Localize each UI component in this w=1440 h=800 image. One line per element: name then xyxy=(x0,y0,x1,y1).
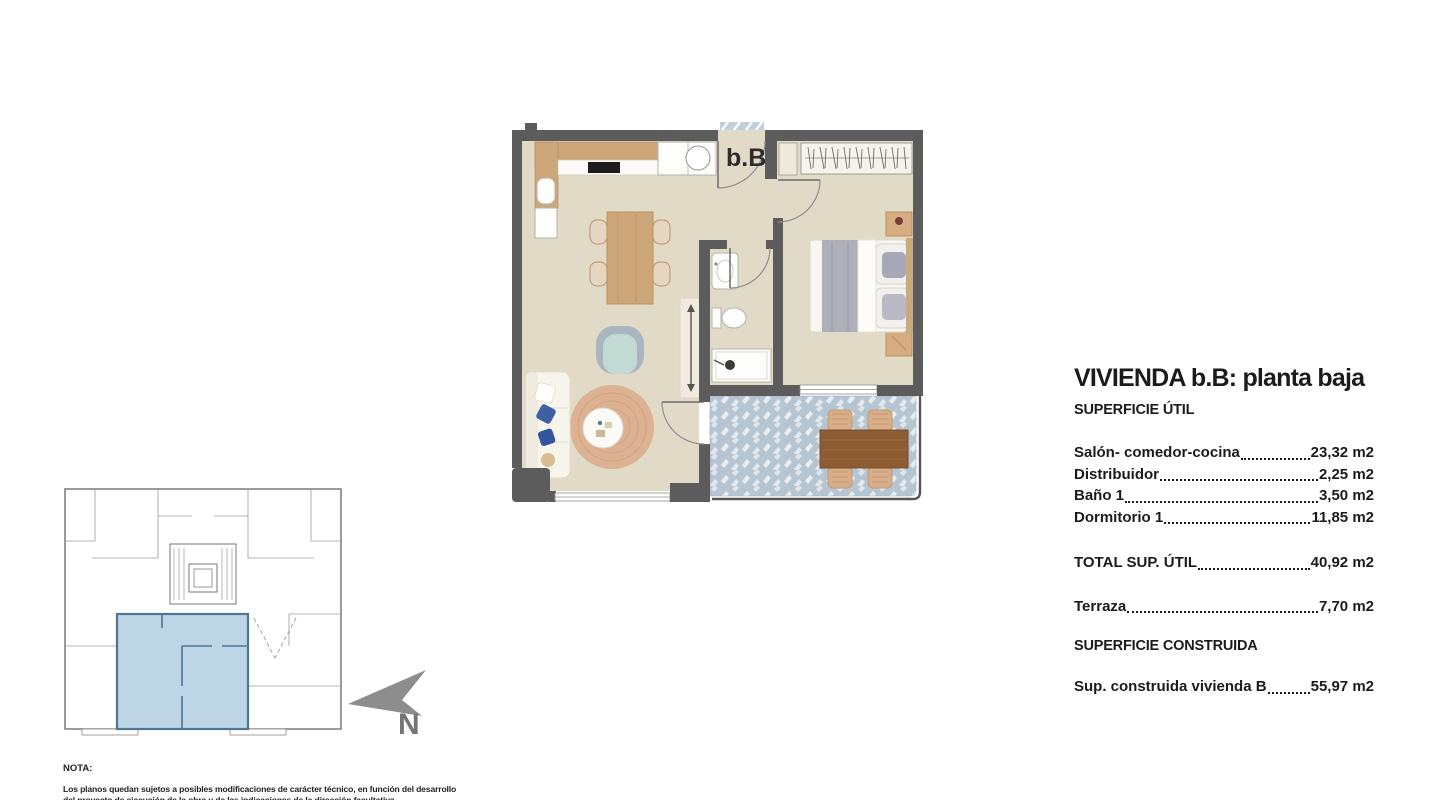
wicker-chair xyxy=(828,467,852,488)
entrance-jamb-wall xyxy=(765,141,777,179)
wall-pilaster xyxy=(525,123,537,131)
north-label: N xyxy=(398,708,420,738)
dining-chair xyxy=(653,262,670,286)
dotted-leader xyxy=(1198,568,1310,570)
area-row: Dormitorio 111,85 m2 xyxy=(1074,507,1374,529)
total-useful-area-row: TOTAL SUP. ÚTIL40,92 m2 xyxy=(1074,552,1374,574)
dining-table xyxy=(607,212,653,304)
dotted-leader xyxy=(1125,501,1318,503)
room-label: Baño 1 xyxy=(1074,485,1124,507)
terrace-table xyxy=(820,430,908,468)
total-area: 40,92 m2 xyxy=(1311,552,1374,574)
hall-closet xyxy=(779,143,797,175)
area-summary: VIVIENDA b.B: planta baja SUPERFICIE ÚTI… xyxy=(1074,364,1374,698)
cooktop xyxy=(588,162,620,173)
note-block: NOTA: Los planos quedan sujetos a posibl… xyxy=(63,763,483,800)
plan-title: VIVIENDA b.B: planta baja xyxy=(1074,364,1374,393)
total-label: TOTAL SUP. ÚTIL xyxy=(1074,552,1197,574)
bathtub xyxy=(712,349,771,382)
bed-blanket xyxy=(822,240,858,332)
wicker-chair xyxy=(868,467,892,488)
dining-chair xyxy=(590,262,607,286)
floorplan-page: b.B N VIVIENDA b.B: planta baja SUPERFIC… xyxy=(0,0,1440,800)
note-line-1: Los planos quedan sujetos a posibles mod… xyxy=(63,784,483,795)
elevator xyxy=(189,564,217,592)
dotted-leader xyxy=(1268,692,1310,694)
room-area: 3,50 m2 xyxy=(1319,485,1374,507)
room-label: Salón- comedor-cocina xyxy=(1074,442,1240,464)
terrace-label: Terraza xyxy=(1074,596,1126,618)
unit-label: b.B xyxy=(726,144,766,172)
wicker-chair xyxy=(868,410,892,431)
room-area: 2,25 m2 xyxy=(1319,464,1374,486)
area-row: Baño 13,50 m2 xyxy=(1074,485,1374,507)
room-label: Distribuidor xyxy=(1074,464,1159,486)
area-row: Salón- comedor-cocina23,32 m2 xyxy=(1074,442,1374,464)
rug-and-coffee-table xyxy=(570,385,654,469)
room-label: Dormitorio 1 xyxy=(1074,507,1163,529)
north-indicator: N xyxy=(342,658,452,738)
headboard xyxy=(906,238,913,334)
toilet-tank xyxy=(712,308,721,328)
useful-area-heading: SUPERFICIE ÚTIL xyxy=(1074,402,1374,418)
round-sink xyxy=(686,146,710,170)
built-area: 55,97 m2 xyxy=(1311,676,1374,698)
terrace-area: 7,70 m2 xyxy=(1319,596,1374,618)
toilet xyxy=(722,308,746,328)
room-area: 11,85 m2 xyxy=(1311,507,1374,529)
console-sideboard xyxy=(680,298,702,398)
main-floor-plan: b.B xyxy=(510,118,930,510)
dotted-leader xyxy=(1241,458,1310,460)
dotted-leader xyxy=(1160,479,1318,481)
useful-area-rows: Salón- comedor-cocina23,32 m2 Distribuid… xyxy=(1074,442,1374,528)
shower-drain xyxy=(725,360,735,370)
dining-chair xyxy=(653,220,670,244)
dotted-leader xyxy=(1127,611,1318,613)
bathroom-left-wall xyxy=(699,240,710,402)
note-line-2: del proyecto de ejecución de la obra y d… xyxy=(63,795,483,800)
entrance-doormat xyxy=(720,122,764,130)
coffee-table xyxy=(583,408,623,448)
note-heading: NOTA: xyxy=(63,763,483,774)
room-area: 23,32 m2 xyxy=(1311,442,1374,464)
key-plan xyxy=(62,486,344,736)
kitchen-appliance xyxy=(535,208,557,238)
dining-chair xyxy=(590,220,607,244)
bedroom-left-wall xyxy=(773,218,783,385)
built-area-row: Sup. construida vivienda B55,97 m2 xyxy=(1074,676,1374,698)
built-area-heading: SUPERFICIE CONSTRUIDA xyxy=(1074,638,1374,654)
wicker-chair xyxy=(828,410,852,431)
built-label: Sup. construida vivienda B xyxy=(1074,676,1267,698)
kitchen-sink-left xyxy=(537,178,555,204)
area-row: Distribuidor2,25 m2 xyxy=(1074,464,1374,486)
terrace-area-row: Terraza7,70 m2 xyxy=(1074,596,1374,618)
sofa xyxy=(526,372,570,478)
stair-elevator-core xyxy=(170,544,236,604)
highlighted-unit xyxy=(117,614,248,729)
armchair xyxy=(596,326,644,374)
dotted-leader xyxy=(1164,522,1310,524)
